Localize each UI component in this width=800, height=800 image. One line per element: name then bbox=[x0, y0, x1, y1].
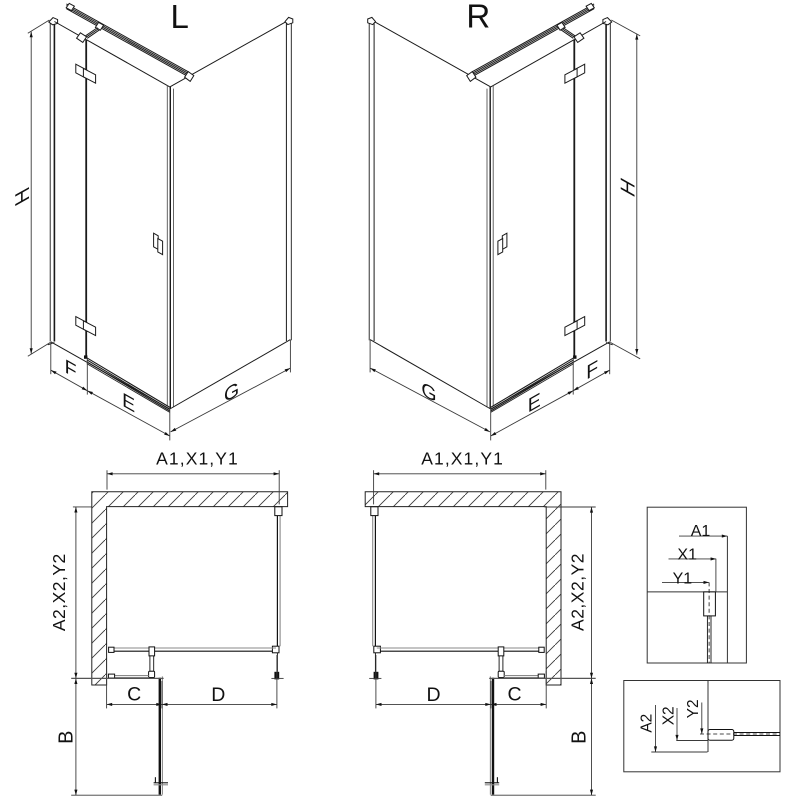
svg-text:B: B bbox=[55, 731, 77, 744]
svg-text:C: C bbox=[507, 684, 521, 706]
svg-text:H: H bbox=[617, 174, 639, 201]
svg-text:C: C bbox=[127, 684, 141, 706]
svg-text:G: G bbox=[224, 378, 239, 408]
svg-text:D: D bbox=[427, 684, 441, 706]
svg-text:X2: X2 bbox=[661, 706, 678, 725]
svg-text:B: B bbox=[569, 731, 591, 744]
svg-text:A2: A2 bbox=[639, 714, 656, 733]
svg-text:E: E bbox=[528, 389, 541, 418]
svg-text:A1,X1,Y1: A1,X1,Y1 bbox=[156, 449, 239, 469]
svg-text:R: R bbox=[466, 0, 490, 35]
svg-text:G: G bbox=[421, 378, 436, 408]
svg-text:L: L bbox=[171, 0, 189, 35]
svg-text:Y1: Y1 bbox=[673, 571, 693, 588]
svg-text:Y2: Y2 bbox=[685, 699, 702, 718]
svg-text:A1: A1 bbox=[691, 523, 711, 540]
svg-text:D: D bbox=[211, 684, 225, 706]
svg-text:A2,X2,Y2: A2,X2,Y2 bbox=[567, 553, 587, 631]
svg-text:H: H bbox=[11, 183, 33, 210]
svg-text:E: E bbox=[122, 389, 135, 418]
svg-text:F: F bbox=[586, 356, 598, 384]
svg-text:A2,X2,Y2: A2,X2,Y2 bbox=[49, 553, 69, 631]
svg-text:A1,X1,Y1: A1,X1,Y1 bbox=[421, 449, 504, 469]
svg-text:X1: X1 bbox=[677, 547, 697, 564]
